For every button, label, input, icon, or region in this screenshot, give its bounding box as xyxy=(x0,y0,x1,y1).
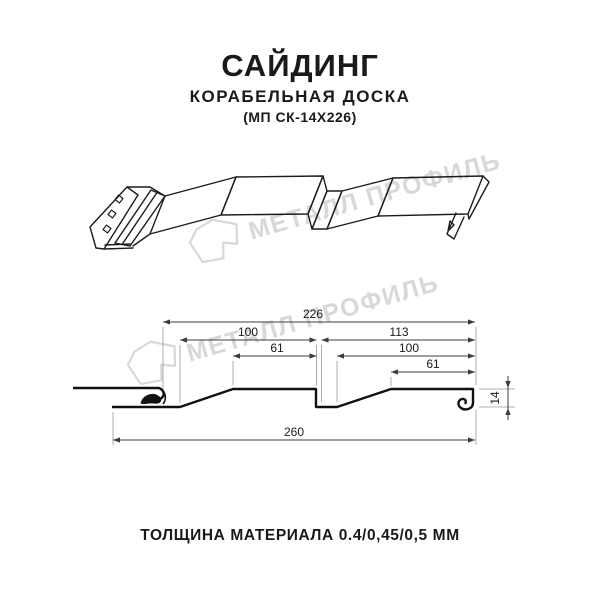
dim-61-right: 61 xyxy=(426,357,440,371)
metall-profil-watermark-top: МЕТАЛЛ ПРОФИЛЬ xyxy=(186,139,506,266)
panel-slope-1 xyxy=(150,177,236,234)
dim-14: 14 xyxy=(488,391,502,405)
watermark-logo-icon xyxy=(124,336,183,388)
technical-drawing: МЕТАЛЛ ПРОФИЛЬ МЕТАЛЛ ПРОФИЛЬ xyxy=(0,0,600,600)
dim-113: 113 xyxy=(389,325,408,339)
dim-100-left: 100 xyxy=(238,325,258,339)
dim-226: 226 xyxy=(303,307,323,321)
thickness-note: ТОЛЩИНА МАТЕРИАЛА 0.4/0,45/0,5 ММ xyxy=(0,527,600,545)
dim-260: 260 xyxy=(284,425,304,439)
dim-100-right: 100 xyxy=(399,341,419,355)
watermark-text: МЕТАЛЛ ПРОФИЛЬ xyxy=(245,147,504,246)
nail-strip xyxy=(90,187,138,249)
dim-61-left: 61 xyxy=(270,341,284,355)
dimension-lines xyxy=(113,322,508,440)
product-diagram-page: САЙДИНГ КОРАБЕЛЬНАЯ ДОСКА (МП СК-14Х226)… xyxy=(0,0,600,600)
nail-holes xyxy=(103,195,123,233)
lock-detail xyxy=(141,394,161,403)
extension-lines xyxy=(113,327,515,445)
profile-outline xyxy=(73,388,473,409)
